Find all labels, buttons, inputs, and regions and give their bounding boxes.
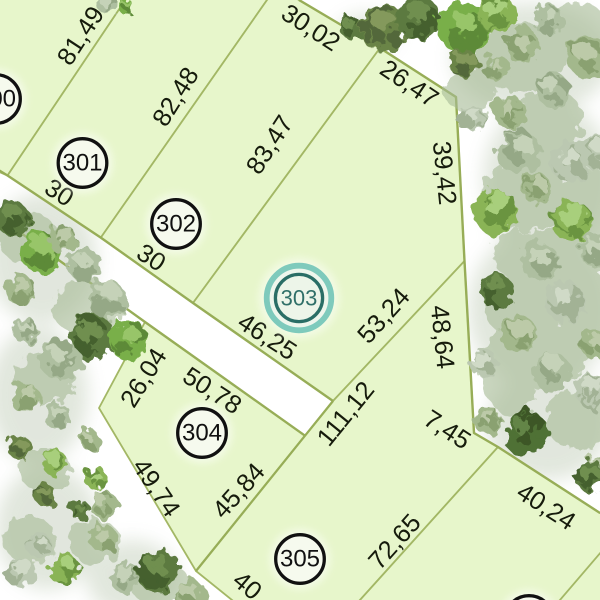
svg-text:305: 305	[280, 546, 320, 573]
svg-text:304: 304	[182, 420, 222, 447]
svg-text:300: 300	[0, 86, 16, 113]
svg-text:302: 302	[156, 211, 196, 238]
svg-text:301: 301	[62, 150, 102, 177]
svg-text:303: 303	[281, 286, 318, 311]
